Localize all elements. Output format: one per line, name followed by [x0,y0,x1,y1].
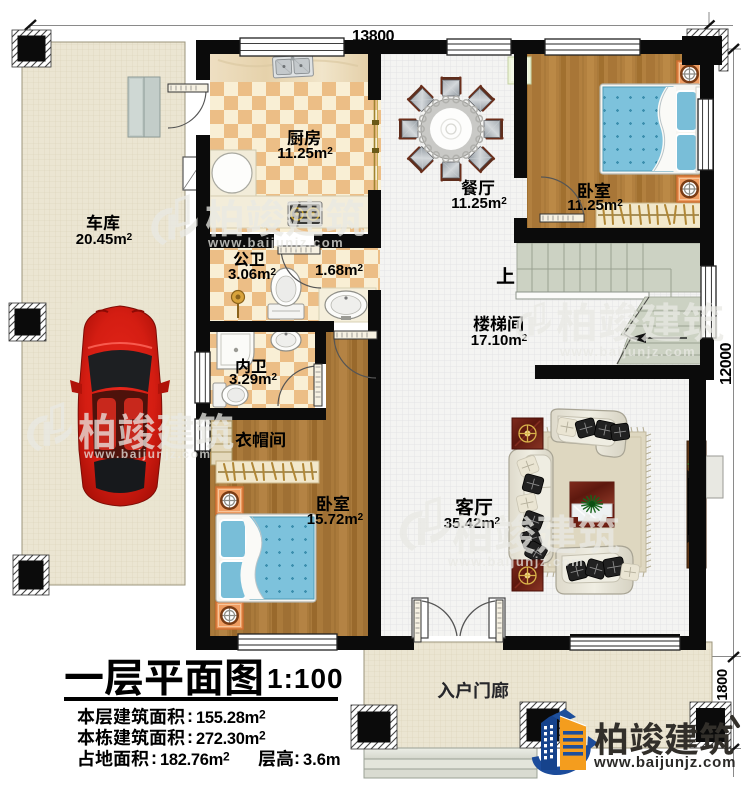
svg-text:3.29m2: 3.29m2 [229,371,278,388]
svg-text::: : [294,748,300,768]
svg-text:12000: 12000 [718,342,735,385]
svg-text::: : [187,727,193,747]
svg-text:www.baijunjz.com: www.baijunjz.com [83,447,212,461]
svg-text:155.28m2: 155.28m2 [196,708,266,728]
svg-text:3.6m: 3.6m [303,751,341,769]
svg-text:11.25m2: 11.25m2 [567,197,623,214]
svg-text::: : [151,748,157,768]
svg-text:1800: 1800 [714,669,731,701]
svg-text:www.baijunjz.com: www.baijunjz.com [593,754,736,771]
svg-text:3.06m2: 3.06m2 [228,266,277,283]
svg-text:1:100: 1:100 [267,663,344,694]
svg-text:182.76m2: 182.76m2 [160,750,230,770]
svg-text:11.25m2: 11.25m2 [277,145,333,162]
svg-text:www.baijunjz.com: www.baijunjz.com [207,235,344,250]
svg-text:www.baijunjz.com: www.baijunjz.com [447,554,584,569]
svg-text:11.25m2: 11.25m2 [451,195,507,212]
svg-text:www.baijunjz.com: www.baijunjz.com [559,344,696,359]
svg-text:15.72m2: 15.72m2 [307,511,364,528]
svg-text:272.30m2: 272.30m2 [196,729,266,749]
svg-text::: : [187,706,193,726]
svg-text:1.68m2: 1.68m2 [315,262,364,279]
svg-text:20.45m2: 20.45m2 [76,231,133,248]
